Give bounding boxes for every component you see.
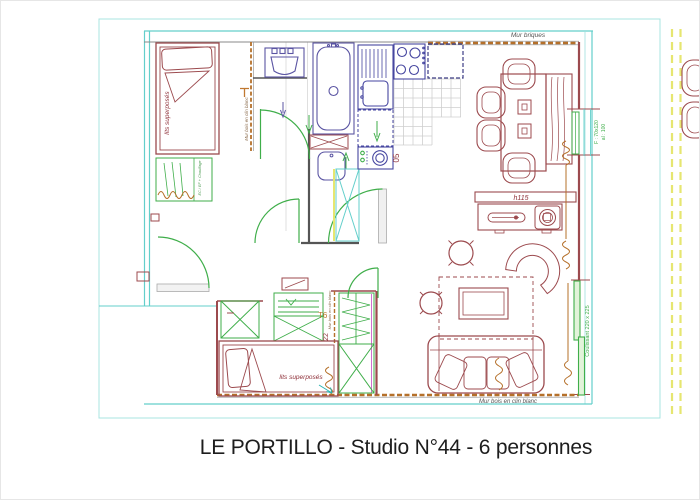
kitchen — [358, 44, 463, 169]
rug — [439, 277, 533, 339]
sliding-bay-label: Coulissant 220 x 225 — [585, 305, 591, 356]
round-stool — [420, 292, 442, 314]
dim-marker-22: 22 — [323, 333, 330, 341]
bathroom — [265, 43, 380, 241]
bed-label-bottom: lits superposés — [279, 374, 323, 381]
wall-label-partition-top: Mur bois en clin blanc — [244, 96, 249, 140]
wc-door — [255, 199, 299, 243]
washing-machine — [358, 147, 393, 169]
bathroom-door — [261, 109, 310, 159]
dim-marker-05: 05 — [392, 153, 401, 162]
floor-tiles — [394, 79, 461, 117]
wardrobe-crossed — [339, 344, 374, 393]
cooktop — [394, 44, 425, 79]
dining-area — [477, 59, 700, 183]
drainer — [362, 49, 386, 78]
linen-cabinet — [274, 293, 323, 341]
sofa — [428, 336, 544, 393]
armchair — [503, 234, 569, 295]
throw-pillow — [505, 351, 539, 388]
blanket-fold — [165, 71, 209, 102]
radiator-coil — [158, 192, 194, 199]
pillow — [161, 47, 212, 71]
hanging-wardrobe — [339, 293, 374, 344]
wood-cabinet — [546, 74, 572, 164]
sideboard-height-label: h115 — [513, 195, 528, 202]
door-stop — [151, 214, 159, 221]
shelf-unit — [156, 158, 212, 201]
window-label-size: F : 70x120 — [594, 120, 600, 144]
floor-tiles — [394, 117, 432, 145]
wall-label-partition-bottom: Mur bois en clin blanc — [327, 291, 332, 330]
refrigerator — [428, 44, 463, 78]
wood-grain — [551, 77, 565, 161]
type-marker-t6: T6 — [318, 311, 328, 320]
wall-type-marks — [240, 89, 249, 98]
electrical-panel — [282, 278, 308, 290]
coffee-table — [459, 288, 508, 319]
neighbor-chair — [682, 102, 700, 138]
window-label-sill: al : 100 — [601, 124, 607, 141]
living-room — [420, 141, 576, 393]
round-table — [449, 241, 474, 266]
wall-label-bottom: Mur bois en clin blanc — [479, 399, 537, 405]
floorplan-page: Mur briques Mur bois en clin blanc Mur b… — [0, 0, 700, 500]
wall-label-top: Mur briques — [511, 32, 546, 39]
washbasin — [265, 48, 304, 77]
window-right — [572, 109, 591, 156]
wardrobe-crossed — [221, 301, 259, 338]
sliding-bay — [574, 281, 585, 395]
entrance-door — [137, 214, 209, 292]
seat-cushion — [464, 357, 486, 389]
blanket-fold — [240, 349, 266, 392]
bed-label-top: lits superposés — [164, 91, 171, 135]
shelf-note: EC / EF + Chauffage — [198, 160, 202, 195]
neighbor-chair — [682, 60, 700, 96]
sink-unit — [358, 45, 393, 109]
site-boundary — [672, 29, 681, 416]
seat-cushion — [487, 357, 509, 389]
toilet — [310, 135, 348, 180]
caption: LE PORTILLO - Studio N°44 - 6 personnes — [91, 436, 700, 460]
bathtub — [313, 43, 354, 134]
intercom-box — [137, 272, 149, 281]
floorplan-drawing: Mur briques Mur bois en clin blanc Mur b… — [1, 1, 700, 500]
dining-chair — [503, 153, 535, 183]
base-cabinet — [358, 110, 393, 146]
bunk-bed-bottom — [219, 341, 338, 396]
